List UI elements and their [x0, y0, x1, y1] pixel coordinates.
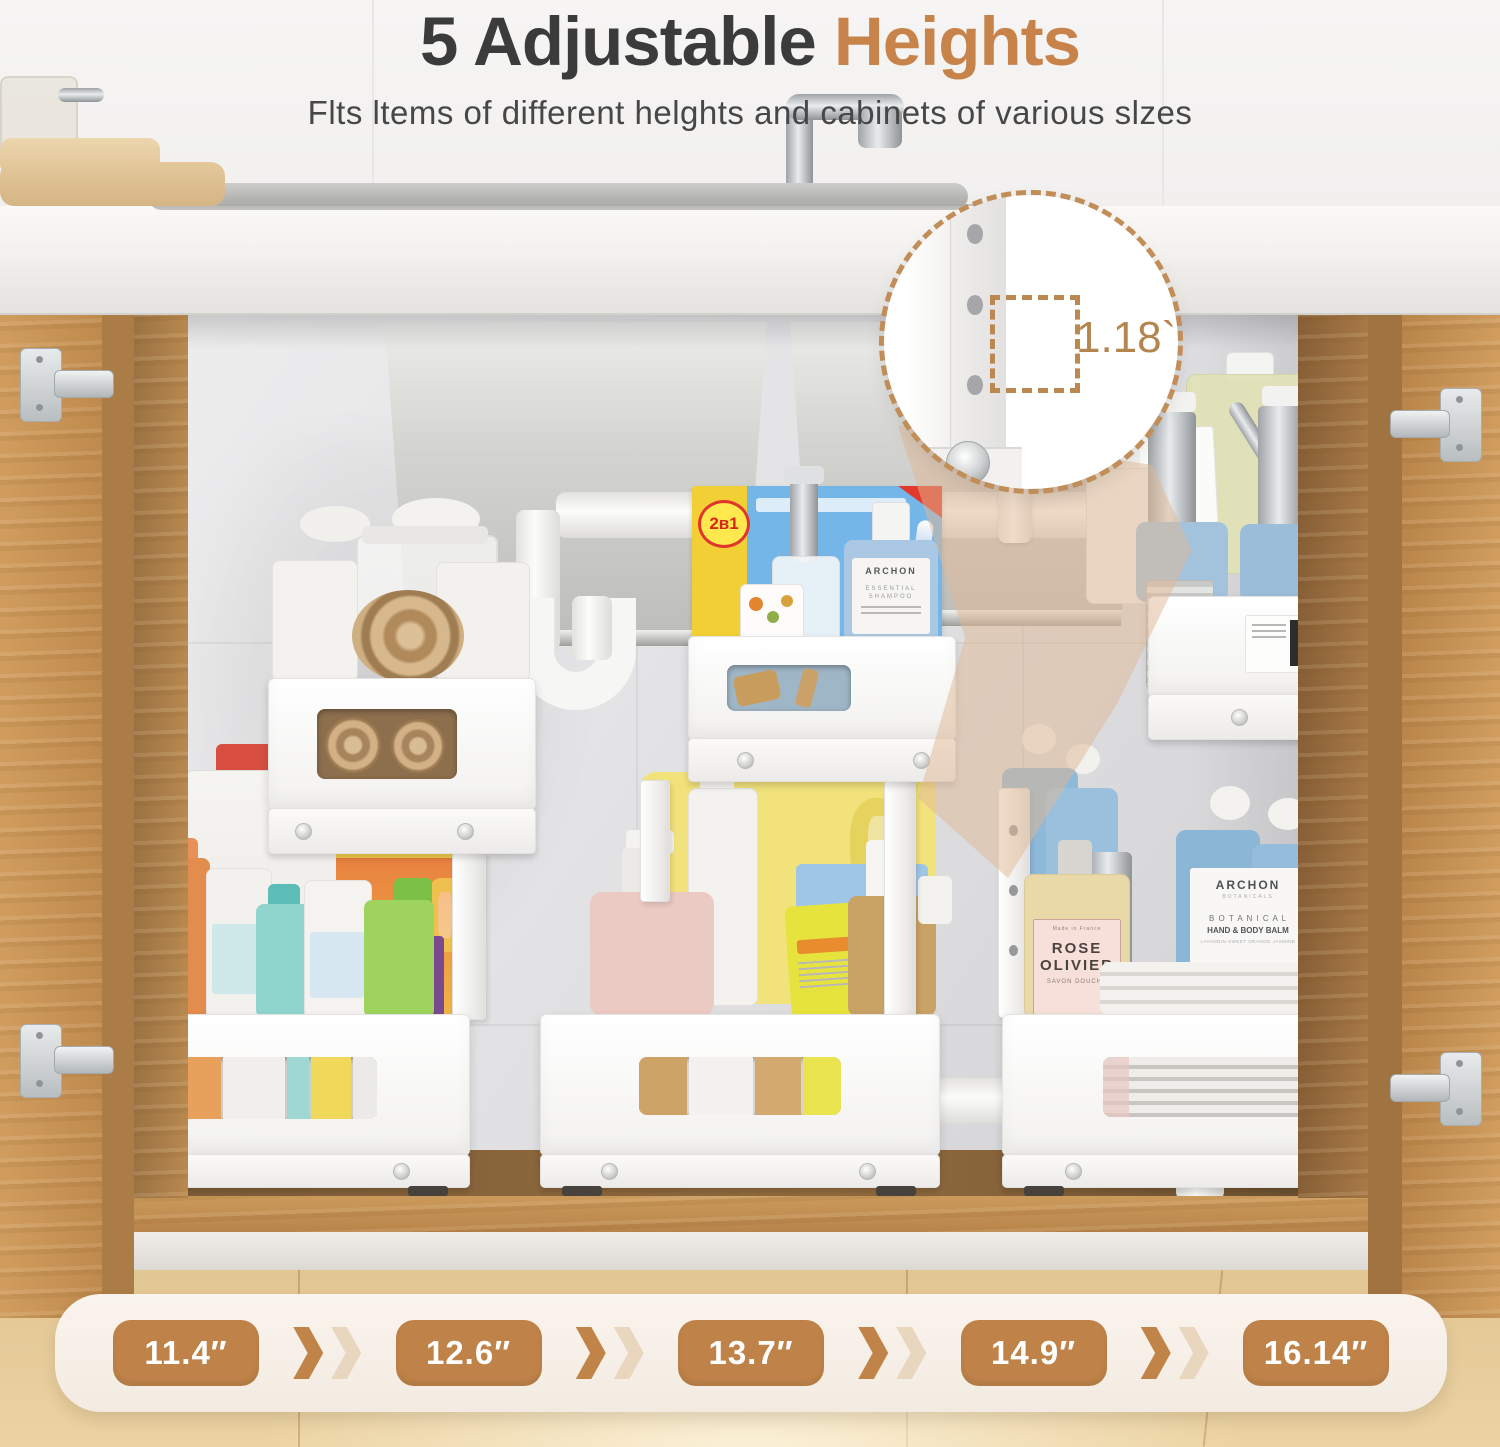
drawer-window — [639, 1057, 841, 1115]
height-pill-1: 11.4″ — [113, 1320, 259, 1386]
countertop — [0, 206, 1500, 263]
page-title: 5 Adjustable Heights — [0, 2, 1500, 81]
left-upper-rail — [268, 808, 536, 854]
drawer-foot — [876, 1186, 916, 1196]
spacing-indicator — [990, 295, 1080, 393]
balm-sub: BOTANICALS — [1190, 894, 1306, 900]
screw — [457, 823, 474, 840]
pump-stem-chrome — [790, 476, 818, 562]
height-pill-2: 12.6″ — [396, 1320, 542, 1386]
canister-lid — [362, 526, 488, 544]
balm-line1: B O T A N I C A L — [1190, 914, 1306, 923]
measurement-text: 1.18` — [1076, 313, 1176, 363]
page-subtitle: Flts ltems of different helghts and cabi… — [0, 94, 1500, 132]
middle-upper-rail — [688, 738, 956, 782]
adjustment-hole — [967, 375, 983, 395]
window-content — [223, 1057, 285, 1119]
counter-fascia — [0, 263, 1500, 315]
adjustment-hole — [967, 224, 983, 244]
drawer-foot — [408, 1186, 448, 1196]
basket-window — [317, 709, 457, 779]
left-upper-basket — [268, 678, 536, 810]
towel-roll-in-window — [391, 719, 445, 773]
chevron-right-icon — [293, 1327, 361, 1379]
brush-handle-in-window — [732, 669, 781, 707]
counter-edge-line — [218, 204, 978, 206]
window-content — [639, 1057, 687, 1115]
trap-outlet-stub — [572, 596, 612, 660]
rose-name1: ROSE — [1034, 940, 1120, 957]
basket-window — [727, 665, 851, 711]
pump-head — [784, 466, 824, 484]
screw — [295, 823, 312, 840]
toe-kick — [0, 1232, 1500, 1272]
pump-top — [918, 876, 952, 924]
chevron-right-icon — [858, 1327, 926, 1379]
window-content — [803, 1057, 841, 1115]
chevron-right-icon — [576, 1327, 644, 1379]
cabinet-side-panel-right — [1298, 313, 1370, 1198]
window-content — [689, 1057, 753, 1115]
screw — [737, 752, 754, 769]
screw — [601, 1163, 618, 1180]
drawer-window — [1103, 1057, 1305, 1117]
towel-roll-in-window — [325, 717, 381, 773]
door-edge-left — [100, 256, 134, 1318]
label-fine-print — [861, 606, 921, 614]
balm-line3: LAVANDIN SWEET ORANGE JASMINE — [1190, 939, 1306, 944]
height-pill-5: 16.14″ — [1243, 1320, 1389, 1386]
drawer-foot — [1024, 1186, 1064, 1196]
title-dark: 5 Adjustable — [420, 3, 816, 80]
balm-line2: HAND & BODY BALM — [1190, 926, 1306, 935]
bottle-knob-cap — [1210, 786, 1250, 820]
callout-post-face — [905, 195, 950, 489]
middle-drawer — [540, 1014, 940, 1156]
rolled-towel — [352, 590, 464, 682]
shampoo-bottle: ARCHON ESSENTIAL SHAMPOO — [844, 540, 938, 648]
callout-screw — [946, 441, 990, 485]
window-content — [311, 1057, 351, 1119]
title-accent: Heights — [834, 3, 1080, 80]
screw — [1231, 709, 1248, 726]
height-pill-4: 14.9″ — [961, 1320, 1107, 1386]
under-counter-shadow — [100, 313, 1400, 349]
green-bottle — [364, 900, 434, 1018]
drawer-window — [177, 1057, 377, 1119]
cabinet-floor-edge — [60, 1196, 1440, 1234]
towel-in-window — [1103, 1057, 1305, 1117]
shampoo-label: ARCHON ESSENTIAL SHAMPOO — [852, 558, 930, 634]
window-content — [755, 1057, 801, 1115]
product-infographic: 5 Adjustable Heights Flts ltems of diffe… — [0, 0, 1500, 1447]
screw — [1065, 1163, 1082, 1180]
balm-brand: ARCHON — [1190, 878, 1306, 892]
shampoo-line1: ESSENTIAL — [852, 586, 930, 592]
bottle-label — [310, 932, 364, 998]
chevron-right-icon — [1141, 1327, 1209, 1379]
drawer-foot — [562, 1186, 602, 1196]
window-content — [353, 1057, 377, 1119]
adjustment-hole — [967, 295, 983, 315]
zoom-callout: 1.18` — [884, 195, 1178, 489]
cabinet-side-panel-left — [132, 313, 188, 1198]
height-pill-3: 13.7″ — [678, 1320, 824, 1386]
box-badge: 2в1 — [698, 500, 750, 548]
heights-bar: 11.4″ 12.6″ 13.7″ 14.9″ 16.14″ — [55, 1294, 1447, 1412]
middle-upper-basket — [688, 636, 956, 740]
middle-frame-post — [640, 780, 670, 902]
window-content — [1103, 1057, 1129, 1117]
left-frame-post — [452, 852, 486, 1020]
shampoo-brand: ARCHON — [852, 566, 930, 576]
white-jar — [272, 560, 358, 682]
cutting-board-large — [0, 162, 225, 206]
brush-handle-in-window — [795, 668, 820, 709]
middle-drawer-rail — [540, 1154, 940, 1188]
middle-frame-post — [884, 780, 916, 1020]
screw — [393, 1163, 410, 1180]
screw — [859, 1163, 876, 1180]
rose-origin: Made in France — [1034, 926, 1120, 932]
pink-bottle — [590, 892, 714, 1016]
window-content — [287, 1057, 309, 1119]
shampoo-line2: SHAMPOO — [852, 594, 930, 600]
